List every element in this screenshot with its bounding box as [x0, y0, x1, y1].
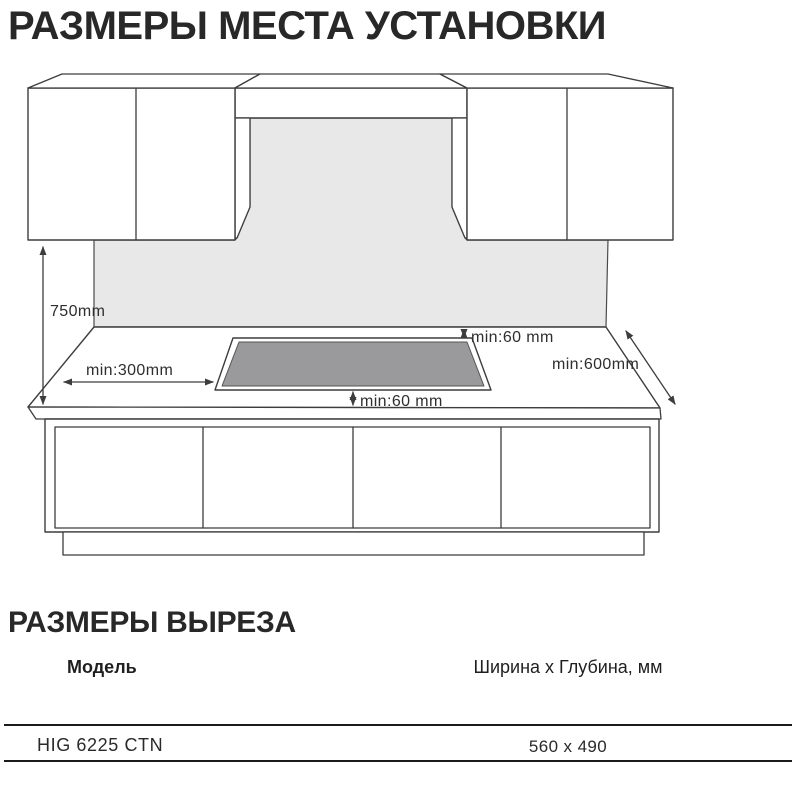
dim-label-60-back: min:60 mm	[471, 329, 554, 346]
countertop-front	[28, 407, 661, 419]
installation-diagram: 750mm min:300mm min:60 mm min:600mm min:…	[0, 0, 800, 600]
dim-label-750: 750mm	[50, 303, 105, 320]
table-cell-size: 560 x 490	[462, 737, 674, 757]
table-cell-model: HIG 6225 CTN	[37, 735, 163, 756]
dim-label-300: min:300mm	[86, 362, 173, 379]
table-header-model: Модель	[67, 657, 137, 678]
cabinet-left-top-face	[28, 74, 260, 88]
table-header-size: Ширина x Глубина, мм	[462, 657, 674, 678]
hood-band	[235, 88, 467, 118]
hob-surface	[222, 342, 484, 386]
plinth	[63, 532, 644, 555]
table-rule-top	[4, 724, 792, 726]
hood-top-face	[235, 74, 467, 88]
cabinet-right-top-face	[440, 74, 673, 88]
page: РАЗМЕРЫ МЕСТА УСТАНОВКИ	[0, 0, 800, 798]
table-rule-bottom	[4, 760, 792, 762]
wall-cabinet-left	[28, 88, 235, 240]
dim-label-60-front: min:60 mm	[360, 393, 443, 410]
dim-label-600: min:600mm	[552, 356, 639, 373]
cutout-section-title: РАЗМЕРЫ ВЫРЕЗА	[8, 606, 296, 640]
wall-cabinet-right	[467, 88, 673, 240]
